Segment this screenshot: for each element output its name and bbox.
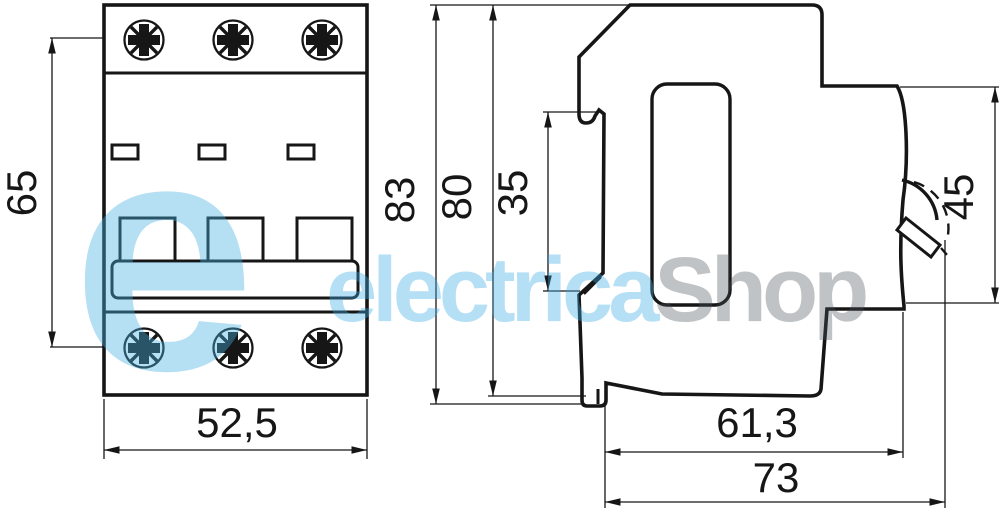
dim-front-height: 65 xyxy=(0,38,104,347)
toggle-assembly xyxy=(112,218,358,298)
total-depth-label: 73 xyxy=(753,454,800,501)
din-rail-label: 35 xyxy=(489,170,536,217)
toggle-knob xyxy=(297,218,352,262)
toggle-knob xyxy=(208,218,263,262)
dim-total-depth: 73 xyxy=(605,240,945,508)
label-window xyxy=(112,145,138,159)
dim-din-rail: 35 xyxy=(489,112,600,291)
label-window xyxy=(288,145,314,159)
toggle-knob xyxy=(120,218,175,262)
toggle-tie-bar xyxy=(112,261,358,298)
side-dimensions: 83 80 35 45 6 xyxy=(376,5,999,508)
dim-front-width: 52,5 xyxy=(104,399,367,459)
front-width-label: 52,5 xyxy=(196,399,278,446)
dimension-drawing: 65 52,5 xyxy=(0,0,1000,510)
front-face-label: 45 xyxy=(935,174,982,221)
pozidriv-screw-icon xyxy=(125,329,164,368)
lever-handle xyxy=(897,218,940,257)
side-view xyxy=(579,5,949,406)
pozidriv-screw-icon xyxy=(303,21,342,60)
din-clip-spring xyxy=(584,277,601,294)
pozidriv-screw-icon xyxy=(125,21,164,60)
pozidriv-screw-icon xyxy=(303,329,342,368)
pozidriv-screw-icon xyxy=(214,329,253,368)
body-depth-label: 61,3 xyxy=(716,399,798,446)
front-height-label: 65 xyxy=(0,170,45,217)
front-view xyxy=(104,5,367,395)
label-windows xyxy=(112,145,314,159)
breaker-dimension-svg: 65 52,5 xyxy=(0,0,1000,510)
dim-front-face: 45 xyxy=(900,87,999,303)
side-body-outline xyxy=(579,5,906,406)
total-height-label: 83 xyxy=(376,177,423,224)
label-window xyxy=(199,145,225,159)
body-height-label: 80 xyxy=(433,174,480,221)
pozidriv-screw-icon xyxy=(214,21,253,60)
front-panel-recess xyxy=(652,84,730,305)
